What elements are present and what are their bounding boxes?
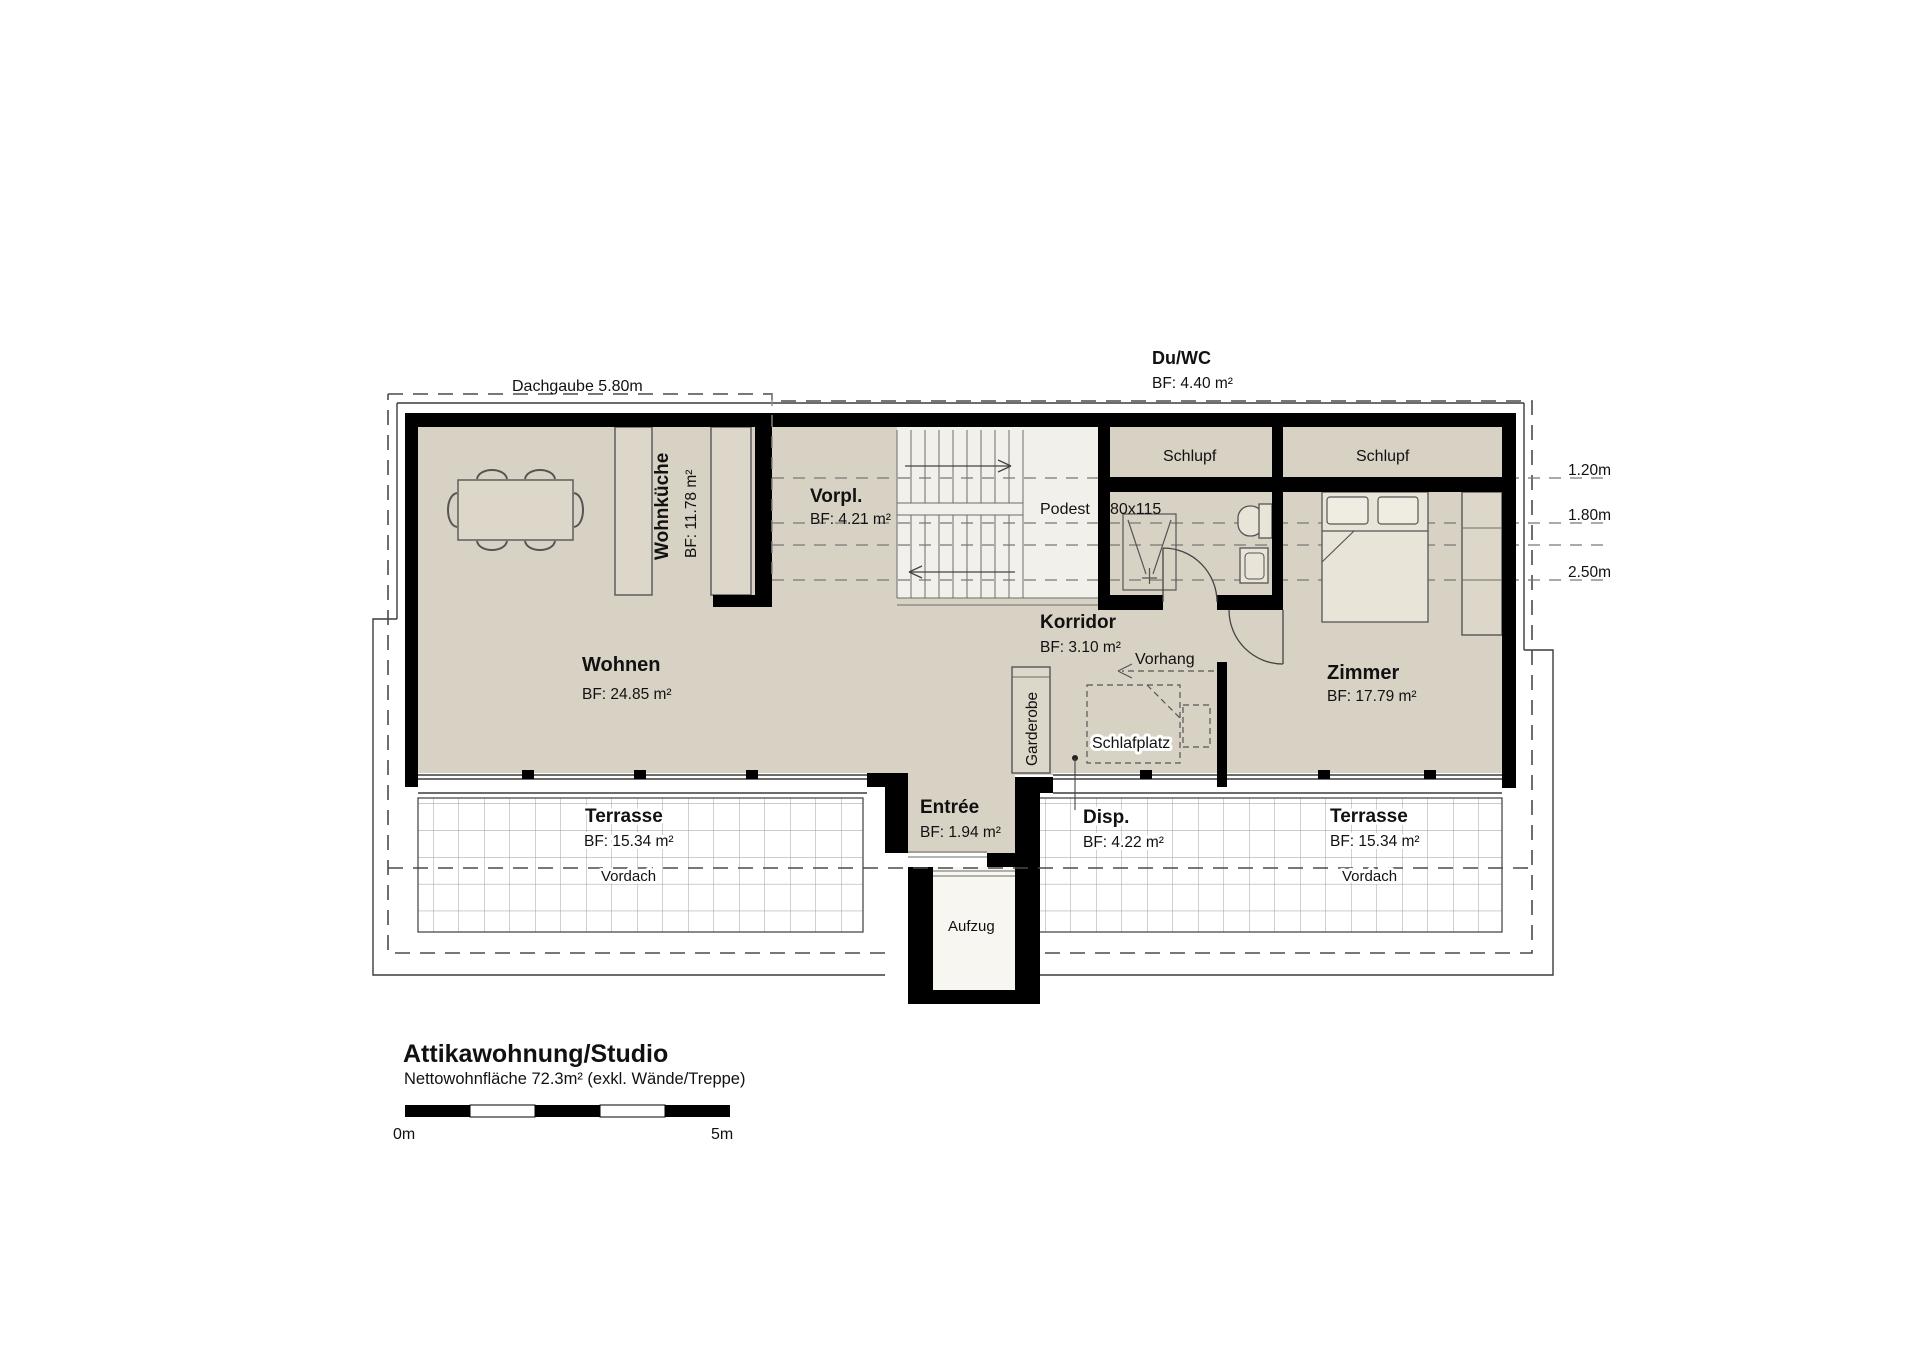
schlupf-right-label: Schlupf <box>1356 448 1410 465</box>
scale-seg <box>470 1105 535 1117</box>
entree-name: Entrée <box>920 797 979 818</box>
mullion <box>1318 770 1330 779</box>
pillow-left <box>1327 497 1368 524</box>
wohnkueche-name: Wohnküche <box>652 453 673 560</box>
zimmer-wardrobe <box>1462 492 1502 635</box>
scale-seg <box>405 1105 470 1117</box>
vorhang-label: Vorhang <box>1135 651 1195 668</box>
schlupf-left-label: Schlupf <box>1163 448 1217 465</box>
wall-lift-stub <box>987 853 1015 868</box>
scale-end-label: 5m <box>711 1126 733 1143</box>
pillow-right <box>1378 497 1418 524</box>
podest-label: Podest <box>1040 501 1090 518</box>
wall-entree-right-h <box>1015 777 1053 793</box>
wohnen-area: BF: 24.85 m² <box>582 686 672 703</box>
mullion <box>522 770 534 779</box>
wall-east <box>1502 413 1516 788</box>
terrasse-right-name: Terrasse <box>1330 806 1408 827</box>
mullion <box>634 770 646 779</box>
wohnen-name: Wohnen <box>582 654 661 676</box>
terrasse-left-name: Terrasse <box>585 806 663 827</box>
wall-west <box>405 413 418 787</box>
wall-bath-south-b <box>1217 595 1283 610</box>
roof-height-250-label: 2.50m <box>1568 564 1611 581</box>
wall-lift-west <box>908 867 933 1004</box>
scale-bar: 0m 5m <box>393 1105 733 1143</box>
vorplatz-name: Vorpl. <box>810 486 862 507</box>
kitchen-counter-right <box>711 427 751 595</box>
wardrobe-body <box>1462 492 1502 635</box>
schlafplatz-label: Schlafplatz <box>1092 735 1170 752</box>
scale-start-label: 0m <box>393 1126 415 1143</box>
disp-name: Disp. <box>1083 807 1129 828</box>
zimmer-name: Zimmer <box>1327 662 1399 684</box>
floorplan-drawing: Dachgaube 5.80m Du/WC BF: 4.40 m² Wohnkü… <box>0 0 1920 1358</box>
scale-seg <box>600 1105 665 1117</box>
plan-title: Attikawohnung/Studio <box>403 1040 668 1068</box>
garderobe-label: Garderobe <box>1024 692 1041 766</box>
korridor-name: Korridor <box>1040 612 1117 633</box>
wall-kitchen-partition <box>755 427 772 607</box>
korridor-area: BF: 3.10 m² <box>1040 639 1121 656</box>
bed-group <box>1322 492 1428 622</box>
duwc-name: Du/WC <box>1152 348 1211 368</box>
aufzug-label: Aufzug <box>948 918 995 935</box>
terrasse-left-area: BF: 15.34 m² <box>584 833 674 850</box>
dining-table <box>458 480 573 540</box>
shower-size-label: 80x115 <box>1110 501 1161 518</box>
scale-seg <box>665 1105 730 1117</box>
plan-subtitle: Nettowohnfläche 72.3m² (exkl. Wände/Trep… <box>404 1070 745 1088</box>
window-band-left <box>418 770 867 794</box>
roof-height-120-label: 1.20m <box>1568 462 1611 479</box>
disp-area: BF: 4.22 m² <box>1083 834 1164 851</box>
wall-schlupf-right-sill <box>1283 477 1502 492</box>
entree-area: BF: 1.94 m² <box>920 824 1001 841</box>
wall-schlupf-left-sill <box>1110 477 1272 492</box>
mullion-niche <box>1217 770 1227 787</box>
vorplatz-area: BF: 4.21 m² <box>810 511 891 528</box>
wall-stair-bath <box>1098 427 1110 610</box>
wohnkueche-area: BF: 11.78 m² <box>683 470 700 558</box>
terrasse-right-area: BF: 15.34 m² <box>1330 833 1420 850</box>
roof-height-180-label: 1.80m <box>1568 507 1611 524</box>
wall-bath-zimmer <box>1272 427 1283 610</box>
wall-north <box>405 413 1516 427</box>
scale-seg <box>535 1105 600 1117</box>
wall-bath-south-a <box>1098 595 1163 610</box>
mullion <box>746 770 758 779</box>
zimmer-area: BF: 17.79 m² <box>1327 688 1417 705</box>
vordach-left-label: Vordach <box>601 868 656 885</box>
toilet-tank <box>1259 504 1272 538</box>
wall-entree-left-h <box>867 773 908 787</box>
vordach-right-label: Vordach <box>1342 868 1397 885</box>
duwc-area: BF: 4.40 m² <box>1152 375 1233 392</box>
mullion <box>1424 770 1436 779</box>
wall-sleeping-niche <box>1217 662 1227 773</box>
wall-lift-south <box>908 990 1040 1004</box>
kitchen-counter-left <box>615 427 652 595</box>
mullion <box>1140 770 1152 779</box>
dining-set <box>448 470 583 550</box>
wall-lift-east <box>1015 793 1040 1004</box>
title-block: Attikawohnung/Studio Nettowohnfläche 72.… <box>393 1040 745 1143</box>
floorplan-page: Dachgaube 5.80m Du/WC BF: 4.40 m² Wohnkü… <box>0 0 1920 1358</box>
window-band-right <box>1053 770 1502 794</box>
wall-kitchen-foot <box>713 595 772 607</box>
dormer-label: Dachgaube 5.80m <box>512 378 643 395</box>
